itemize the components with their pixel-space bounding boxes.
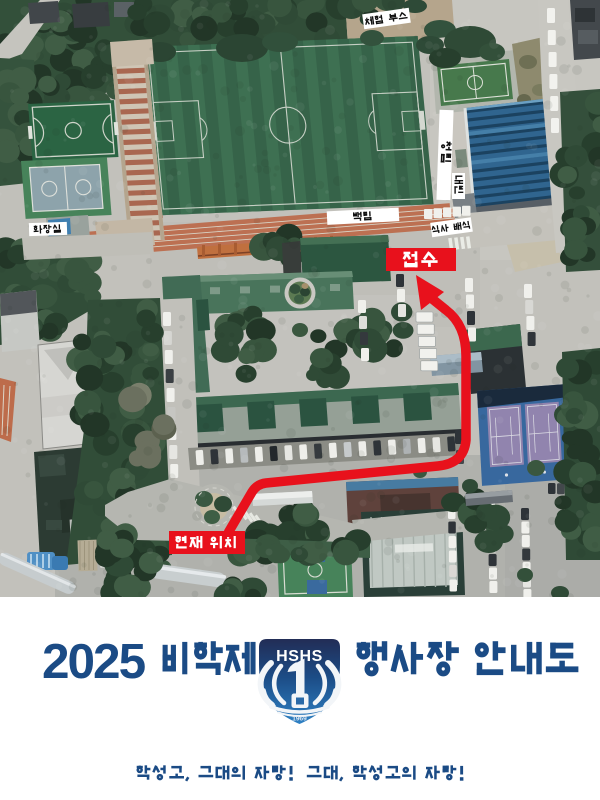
svg-text:1969: 1969	[292, 716, 307, 723]
svg-text:2025: 2025	[42, 634, 146, 689]
